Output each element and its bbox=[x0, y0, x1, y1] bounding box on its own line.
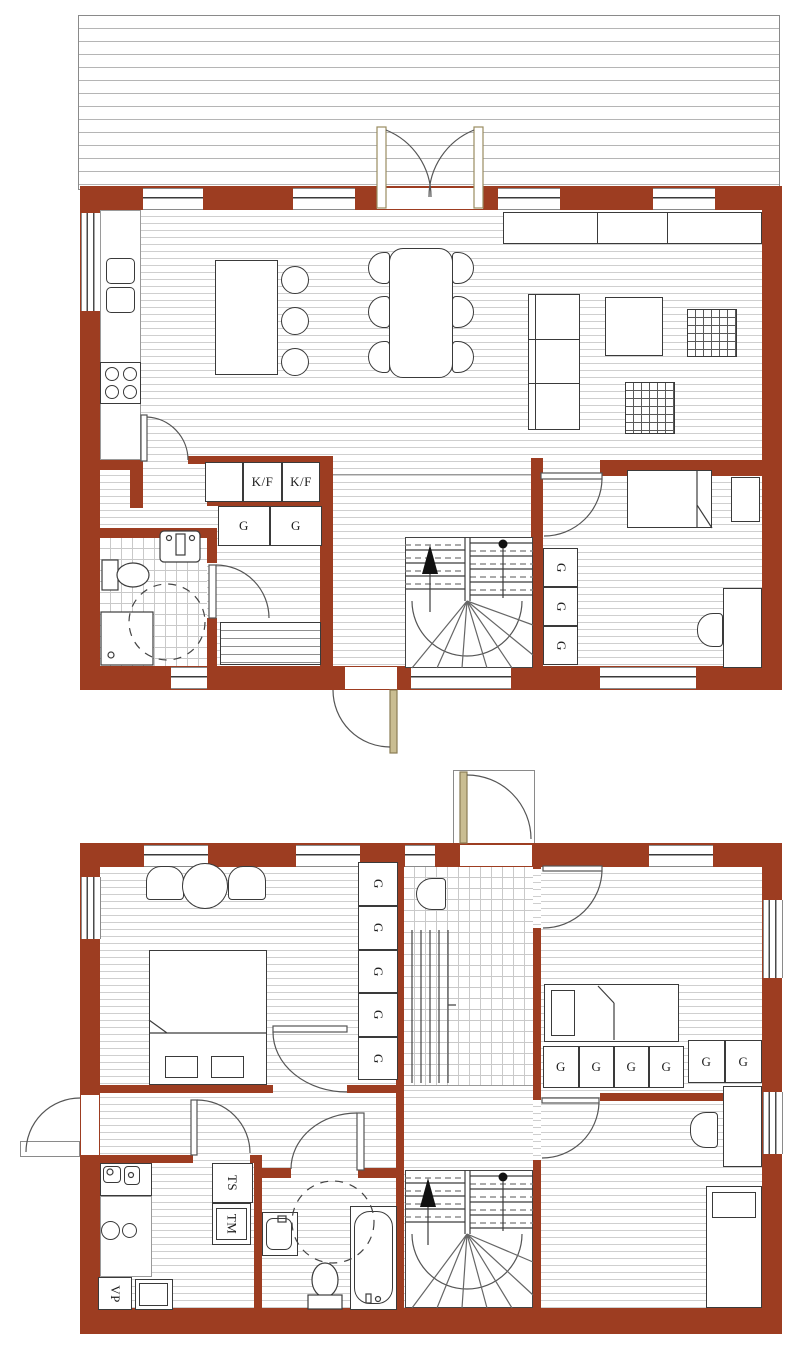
dining-table bbox=[389, 248, 453, 378]
sofa-cushion-line bbox=[529, 339, 579, 340]
wardrobe-cabinet: G bbox=[358, 950, 398, 993]
kitchen-counter bbox=[100, 210, 141, 460]
washing-machine-inner: TM bbox=[216, 1208, 247, 1240]
passage-opening bbox=[533, 1100, 541, 1160]
burner bbox=[123, 367, 137, 381]
fridge-freezer-label: K/F bbox=[252, 474, 274, 490]
door-opening bbox=[533, 869, 541, 928]
floor-transition bbox=[333, 474, 531, 475]
balcony-door-opening bbox=[81, 1095, 99, 1155]
wardrobe-label: G bbox=[627, 1059, 637, 1075]
sofa-cushion-line bbox=[529, 383, 579, 384]
wall bbox=[262, 1168, 291, 1178]
kitchen-sink bbox=[106, 258, 135, 284]
wardrobe-label: G bbox=[552, 641, 568, 651]
window bbox=[81, 877, 101, 939]
window bbox=[498, 188, 560, 210]
bench bbox=[220, 622, 321, 665]
wardrobe-label: G bbox=[370, 1010, 386, 1020]
burner bbox=[105, 367, 119, 381]
deck bbox=[78, 15, 780, 190]
wardrobe-label: G bbox=[370, 879, 386, 889]
wardrobe-cabinet: G bbox=[543, 1046, 579, 1088]
wardrobe-cabinet: G bbox=[358, 906, 398, 950]
chair bbox=[416, 878, 446, 910]
wardrobe-label: G bbox=[739, 1054, 749, 1070]
wardrobe-label: G bbox=[592, 1059, 602, 1075]
wardrobe-cabinet: G bbox=[688, 1040, 725, 1083]
bar-stool bbox=[281, 266, 309, 294]
wardrobe-label: G bbox=[370, 1054, 386, 1064]
bar-stool bbox=[281, 348, 309, 376]
drying-cabinet-label: TS bbox=[224, 1175, 240, 1191]
balcony bbox=[20, 1141, 80, 1157]
washing-machine-label: TM bbox=[224, 1214, 240, 1235]
laundry-drum bbox=[122, 1223, 137, 1238]
bathroom-floor bbox=[100, 538, 207, 666]
pillow bbox=[551, 990, 575, 1036]
desk-chair bbox=[697, 613, 723, 647]
laundry-basin bbox=[124, 1166, 140, 1185]
wall bbox=[207, 528, 217, 563]
wall bbox=[207, 618, 217, 668]
heat-pump: VP bbox=[98, 1277, 132, 1310]
wall bbox=[254, 1155, 262, 1308]
balcony bbox=[453, 770, 535, 845]
wall bbox=[100, 528, 207, 538]
floor-transition bbox=[404, 1085, 533, 1086]
sofa-back bbox=[535, 295, 536, 429]
window bbox=[81, 213, 101, 311]
wardrobe-label: G bbox=[552, 563, 568, 573]
wardrobe-label: G bbox=[556, 1059, 566, 1075]
kitchen-island bbox=[215, 260, 278, 375]
bar-stool bbox=[281, 307, 309, 335]
wardrobe-label: G bbox=[552, 602, 568, 612]
wardrobe-cabinet: G bbox=[543, 626, 578, 665]
wardrobe-label: G bbox=[291, 518, 301, 534]
wall bbox=[100, 1155, 193, 1163]
kitchen-sink bbox=[106, 287, 135, 313]
armchair bbox=[687, 309, 737, 357]
window bbox=[143, 188, 203, 210]
laundry-basin bbox=[103, 1166, 121, 1183]
wardrobe-cabinet: G bbox=[725, 1040, 762, 1083]
wardrobe-cabinet: G bbox=[649, 1046, 684, 1088]
entry-door-opening bbox=[345, 667, 397, 689]
fridge-freezer-label: K/F bbox=[290, 474, 312, 490]
window bbox=[763, 900, 783, 978]
wardrobe-cabinet: G bbox=[358, 1037, 398, 1080]
laundry-drum bbox=[101, 1221, 120, 1240]
chair bbox=[228, 866, 266, 900]
window bbox=[405, 845, 435, 867]
wardrobe-label: G bbox=[370, 923, 386, 933]
wall bbox=[80, 1308, 782, 1334]
bed-chest bbox=[165, 1056, 198, 1078]
burner bbox=[123, 385, 137, 399]
heat-pump-label: VP bbox=[107, 1285, 123, 1303]
pillow bbox=[712, 1192, 756, 1218]
entry-door bbox=[333, 690, 397, 753]
armchair bbox=[625, 382, 675, 434]
sideboard-divider bbox=[667, 213, 668, 243]
sideboard-divider bbox=[597, 213, 598, 243]
bed bbox=[627, 470, 712, 528]
wardrobe-cabinet: G bbox=[543, 548, 578, 587]
balcony-door-opening bbox=[460, 845, 532, 866]
wardrobe-label: G bbox=[662, 1059, 672, 1075]
desk-chair bbox=[690, 1112, 718, 1148]
fridge-freezer-cabinet: K/F bbox=[243, 462, 282, 502]
wash-basin-bowl bbox=[266, 1218, 292, 1250]
burner bbox=[105, 385, 119, 399]
wardrobe-cabinet: G bbox=[358, 993, 398, 1037]
wall bbox=[130, 458, 143, 508]
round-table bbox=[182, 863, 228, 909]
window bbox=[653, 188, 715, 210]
window bbox=[649, 845, 713, 867]
desk bbox=[723, 588, 762, 668]
wardrobe-label: G bbox=[370, 967, 386, 977]
window bbox=[763, 1092, 783, 1154]
bathtub-inner bbox=[354, 1211, 393, 1304]
patio-door-opening bbox=[377, 188, 483, 209]
wardrobe-label: G bbox=[702, 1054, 712, 1070]
chair bbox=[146, 866, 184, 900]
staircase bbox=[405, 1170, 533, 1308]
wardrobe-cabinet: G bbox=[270, 506, 322, 546]
window bbox=[296, 845, 360, 867]
wardrobe-cabinet: G bbox=[579, 1046, 614, 1088]
door-opening bbox=[273, 1085, 347, 1093]
floor-plan-drawing: K/F K/F G G G G G bbox=[0, 0, 800, 1360]
wardrobe-cabinet: G bbox=[358, 862, 398, 906]
wall bbox=[358, 1168, 396, 1178]
window bbox=[293, 188, 355, 210]
cabinet bbox=[205, 462, 243, 502]
wall bbox=[762, 186, 782, 690]
bed-chest bbox=[211, 1056, 244, 1078]
window bbox=[600, 667, 696, 689]
wardrobe-label: G bbox=[239, 518, 249, 534]
wardrobe-cabinet: G bbox=[543, 587, 578, 626]
drying-cabinet: TS bbox=[212, 1163, 253, 1203]
wall bbox=[320, 456, 333, 668]
wall bbox=[533, 867, 541, 1308]
wardrobe-cabinet: G bbox=[218, 506, 270, 546]
fridge-freezer-cabinet: K/F bbox=[282, 462, 320, 502]
coffee-table bbox=[605, 297, 663, 356]
sideboard bbox=[503, 212, 762, 244]
cabinet-inner bbox=[139, 1283, 168, 1306]
window bbox=[411, 667, 511, 689]
wall bbox=[100, 1085, 396, 1093]
nightstand bbox=[731, 477, 760, 522]
desk bbox=[723, 1086, 762, 1167]
staircase bbox=[405, 537, 533, 668]
wardrobe-cabinet: G bbox=[614, 1046, 649, 1088]
window bbox=[171, 667, 207, 689]
